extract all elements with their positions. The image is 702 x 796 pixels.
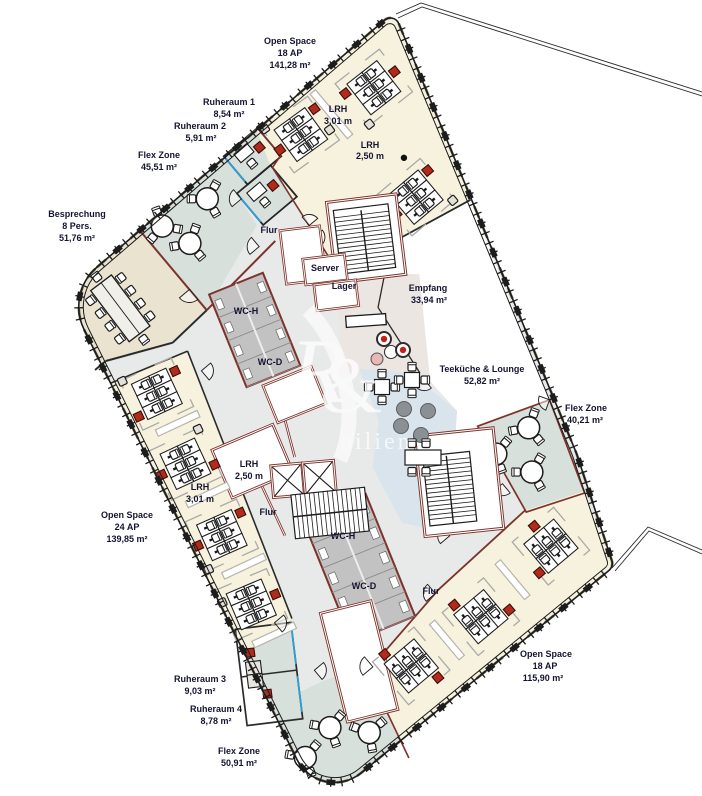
svg-text:Ruheraum 2: Ruheraum 2 <box>174 121 226 131</box>
svg-text:18 AP: 18 AP <box>533 661 558 671</box>
svg-text:52,82 m²: 52,82 m² <box>464 376 500 386</box>
svg-text:Server: Server <box>311 263 340 273</box>
svg-text:LRH: LRH <box>361 140 380 150</box>
svg-text:2,50 m: 2,50 m <box>356 151 384 161</box>
svg-text:40,21 m²: 40,21 m² <box>567 415 603 425</box>
svg-text:Open Space: Open Space <box>520 649 572 659</box>
svg-text:115,90 m²: 115,90 m² <box>523 673 564 683</box>
svg-text:2,50 m: 2,50 m <box>235 471 263 481</box>
svg-text:Teeküche & Lounge: Teeküche & Lounge <box>440 364 525 374</box>
svg-text:3,01 m: 3,01 m <box>324 116 352 126</box>
svg-text:Empfang: Empfang <box>409 283 448 293</box>
svg-text:WC-D: WC-D <box>258 357 283 367</box>
svg-text:3,01 m: 3,01 m <box>186 494 214 504</box>
svg-text:Flex Zone: Flex Zone <box>138 150 180 160</box>
svg-text:Besprechung: Besprechung <box>48 209 106 219</box>
svg-text:18 AP: 18 AP <box>278 48 303 58</box>
svg-text:50,91 m²: 50,91 m² <box>221 758 257 768</box>
svg-text:Flur: Flur <box>260 507 277 517</box>
svg-text:Lager: Lager <box>332 281 357 291</box>
svg-text:8 Pers.: 8 Pers. <box>62 221 92 231</box>
svg-text:8,54 m²: 8,54 m² <box>213 109 244 119</box>
svg-text:45,51 m²: 45,51 m² <box>141 162 177 172</box>
svg-text:Flex Zone: Flex Zone <box>565 403 607 413</box>
svg-text:5,91 m²: 5,91 m² <box>185 133 216 143</box>
svg-text:Ruheraum 1: Ruheraum 1 <box>203 97 255 107</box>
svg-text:LRH: LRH <box>240 459 259 469</box>
svg-text:LRH: LRH <box>191 482 210 492</box>
svg-text:WC-H: WC-H <box>331 531 356 541</box>
svg-text:&: & <box>320 342 382 430</box>
svg-text:24 AP: 24 AP <box>115 522 140 532</box>
svg-text:33,94 m²: 33,94 m² <box>411 295 447 305</box>
svg-text:9,03 m²: 9,03 m² <box>184 686 215 696</box>
svg-text:Ruheraum 4: Ruheraum 4 <box>190 704 242 714</box>
svg-text:Flur: Flur <box>261 225 278 235</box>
svg-text:WC-D: WC-D <box>352 581 377 591</box>
svg-text:Flex Zone: Flex Zone <box>218 746 260 756</box>
svg-text:bilien: bilien <box>340 429 413 455</box>
svg-text:Flur: Flur <box>423 586 440 596</box>
svg-text:LRH: LRH <box>329 104 348 114</box>
svg-text:8,78 m²: 8,78 m² <box>200 716 231 726</box>
svg-text:141,28 m²: 141,28 m² <box>269 60 310 70</box>
svg-text:Ruheraum 3: Ruheraum 3 <box>174 674 226 684</box>
svg-text:139,85 m²: 139,85 m² <box>106 534 147 544</box>
svg-text:Open Space: Open Space <box>264 36 316 46</box>
svg-text:Open Space: Open Space <box>101 510 153 520</box>
svg-text:51,76 m²: 51,76 m² <box>59 233 95 243</box>
svg-text:WC-H: WC-H <box>234 306 259 316</box>
